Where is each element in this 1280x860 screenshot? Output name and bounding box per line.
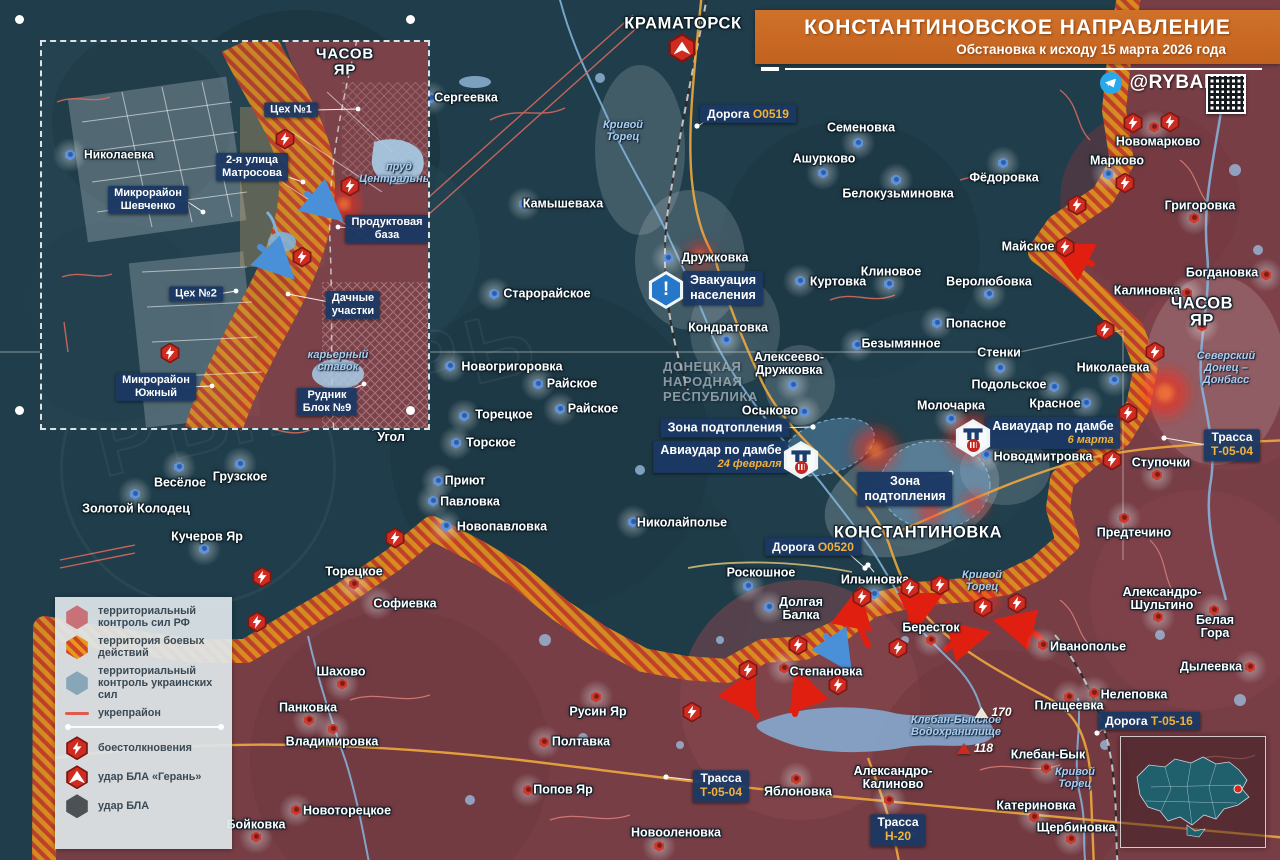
town-label: Клебан-Бык — [1011, 748, 1086, 761]
inset-label-box: Цех №1 — [264, 102, 318, 117]
town-label: Попов Яр — [533, 783, 593, 796]
clash-icon-inner — [901, 579, 918, 596]
event-box: Зонаподтопления — [857, 472, 952, 506]
town-label: Бересток — [902, 621, 959, 634]
town-label: Грузское — [213, 470, 267, 483]
inset-corner-dot — [406, 15, 415, 24]
legend-item-geran: удар БЛА «Герань» — [65, 765, 224, 789]
town-label: Торецкое — [325, 565, 382, 578]
inset-label-box: Продуктоваябаза — [345, 215, 428, 243]
war-map-screenshot: РЫБАРЬ СергеевкаКамышевахаСтарорайскоеНо… — [0, 0, 1280, 860]
road-sign-word: Дорога — [1105, 714, 1151, 728]
town-label: Русин Яр — [569, 705, 626, 718]
road-sign-word: Дорога — [772, 540, 818, 554]
event-date: 6 марта — [992, 434, 1113, 447]
town-label: Николаевка — [84, 149, 154, 162]
town-label: Приют — [445, 474, 486, 487]
clash-icon — [1067, 195, 1088, 216]
lightning-glyph — [858, 591, 867, 604]
town-label: Ашурково — [793, 152, 856, 165]
clash-icon — [275, 129, 296, 150]
town-label: Осыково — [742, 404, 798, 417]
geran-glyph — [670, 36, 695, 61]
combat-zone-icon — [65, 635, 89, 659]
inset-box-line: Блок №9 — [303, 402, 351, 415]
road-sign-word: Дорога — [707, 107, 753, 121]
legend-separator — [67, 726, 222, 728]
town-label: Клиновое — [861, 265, 922, 278]
elevation-value: 118 — [974, 741, 993, 755]
elevation-marker: 118 — [957, 741, 993, 755]
town-label: Николаевка — [1077, 361, 1150, 374]
lightning-glyph — [166, 347, 175, 360]
town-label: Александро- Калиново — [854, 765, 933, 791]
event-date: 24 февраля — [660, 458, 781, 471]
town-label: Долгая Балка — [779, 596, 823, 622]
clash-icon — [160, 343, 181, 364]
town-label: Безымянное — [861, 337, 940, 350]
clash-icon — [1145, 342, 1166, 363]
lightning-glyph — [1101, 324, 1110, 337]
town-label: Предтечино — [1097, 526, 1171, 539]
inset-box-line: база — [351, 229, 422, 242]
town-label: Новоторецкое — [303, 804, 391, 817]
town-label: Старорайское — [503, 287, 590, 300]
clash-icon-inner — [253, 568, 270, 585]
exclamation-glyph: ! — [650, 274, 681, 305]
town-label: Новооленовка — [631, 826, 721, 839]
lightning-glyph — [1013, 597, 1022, 610]
town-label: Ильиновка — [841, 573, 909, 586]
road-sign: ТрассаТ-05-04 — [693, 770, 749, 802]
lightning-glyph — [1129, 117, 1138, 130]
inset-corner-dot — [15, 15, 24, 24]
inset-box-line: Микрорайон — [122, 374, 190, 387]
road-sign-code: О0519 — [753, 107, 789, 121]
clash-icon-inner — [1161, 113, 1178, 130]
event-box-line: Авиаудар по дамбе — [660, 443, 781, 458]
lightning-glyph — [834, 679, 843, 692]
town-label: Марково — [1090, 154, 1144, 167]
town-label: Подольское — [972, 378, 1047, 391]
region-label: ДОНЕЦКАЯ НАРОДНАЯ РЕСПУБЛИКА — [663, 360, 758, 405]
town-label: Веролюбовка — [946, 275, 1032, 288]
clash-icon-inner — [1096, 321, 1113, 338]
telegram-icon — [1100, 72, 1122, 94]
water-label: Северский Донец – Донбасс — [1197, 350, 1255, 386]
inset-label-box: МикрорайонШевченко — [108, 186, 188, 214]
legend-item-ukraine-control: территориальный контроль украинских сил — [65, 665, 224, 702]
lightning-glyph — [1166, 116, 1175, 129]
clash-icon-inner — [1124, 114, 1141, 131]
elevation-triangle — [974, 707, 988, 718]
event-box-line: Зона подтопления — [668, 421, 783, 436]
town-label: Торецкое — [475, 408, 532, 421]
town-label: Новопавловка — [457, 520, 547, 533]
clash-icon-inner — [1056, 238, 1073, 255]
water-label: Кривой Торец — [1055, 766, 1095, 790]
town-label: Камышеваха — [523, 197, 603, 210]
clash-icon — [292, 247, 313, 268]
road-sign-word: Трасса — [1211, 431, 1253, 445]
lightning-glyph — [281, 133, 290, 146]
event-box: Эвакуациянаселения — [683, 271, 763, 305]
town-label: Алексеево- Дружковка — [754, 351, 824, 377]
clash-icon-inner — [1068, 196, 1085, 213]
clash-icon-inner — [248, 613, 265, 630]
clash-icon-inner — [1103, 451, 1120, 468]
clash-icon — [682, 702, 703, 723]
evacuation-icon: ! — [647, 271, 685, 309]
town-label: Николайполье — [637, 516, 727, 529]
town-label: Сергеевка — [434, 91, 498, 104]
clash-icon-inner — [276, 130, 293, 147]
town-label: Молочарка — [917, 399, 985, 412]
event-box: Зона подтопления — [661, 419, 790, 438]
town-label: Белокузьминовка — [842, 187, 953, 200]
fortified-line-icon — [65, 712, 89, 715]
event-box-line: подтопления — [864, 489, 945, 504]
map-subtitle: Обстановка к исходу 15 марта 2026 года — [769, 42, 1266, 57]
town-label: Яблоновка — [764, 785, 832, 798]
inset-label-box: 2-я улицаМатросова — [216, 153, 288, 181]
event-box: Авиаудар по дамбе6 марта — [985, 417, 1120, 449]
lightning-glyph — [1124, 407, 1133, 420]
inset-box-line: участки — [332, 305, 374, 318]
clash-icon-inner — [853, 588, 870, 605]
town-label: Иванополье — [1050, 640, 1126, 653]
clash-icon — [1007, 593, 1028, 614]
chasiv-yar-inset: ЧАСОВ ЯРНиколаевкаЦех №12-я улицаМатросо… — [20, 20, 410, 410]
event-box-line: Зона — [864, 474, 945, 489]
inset-box-line: Южный — [122, 387, 190, 400]
lightning-glyph — [258, 571, 267, 584]
road-sign: Дорога О0520 — [765, 538, 861, 556]
qr-code — [1206, 74, 1246, 114]
legend-item-clash: боестолкновения — [65, 736, 224, 760]
lightning-glyph — [253, 616, 262, 629]
town-label: Катериновка — [996, 799, 1075, 812]
ukraine-minimap — [1120, 736, 1266, 848]
credit-handle: @RYBAR — [1130, 72, 1218, 94]
town-label: Павловка — [440, 495, 500, 508]
clash-icon — [247, 612, 268, 633]
legend-item-russia-control: территориальный контроль сил РФ — [65, 605, 224, 630]
clash-icon-inner — [739, 661, 756, 678]
inset-label-box: Дачныеучастки — [326, 291, 380, 319]
inset-box-line: Цех №2 — [175, 287, 217, 300]
clash-icon — [1102, 450, 1123, 471]
lightning-glyph — [346, 180, 355, 193]
clash-icon-inner — [829, 676, 846, 693]
town-label: Дылеевка — [1180, 660, 1242, 673]
inset-box-line: Дачные — [332, 292, 374, 305]
town-label: Дружковка — [682, 251, 749, 264]
lightning-glyph — [1108, 454, 1117, 467]
clash-icon — [385, 528, 406, 549]
road-sign-code: Т-05-16 — [1151, 714, 1193, 728]
clash-icon-inner — [1119, 404, 1136, 421]
inset-water-label: карьерный ставок — [308, 349, 369, 373]
road-sign: Дорога Т-05-16 — [1098, 712, 1200, 730]
road-sign-code: О0520 — [818, 540, 854, 554]
town-label: Бойковка — [227, 818, 286, 831]
credit: @RYBAR — [1100, 72, 1218, 94]
dam-glyph — [957, 422, 988, 453]
town-label: Семеновка — [827, 121, 895, 134]
clash-icon-inner — [386, 529, 403, 546]
town-label: Весёлое — [154, 476, 206, 489]
clash-icon-inner — [683, 703, 700, 720]
town-label: Куртовка — [810, 275, 866, 288]
inset-label-box: РудникБлок №9 — [297, 388, 357, 416]
lightning-glyph — [906, 582, 915, 595]
town-label: Новодмитровка — [994, 450, 1093, 463]
clash-icon-inner — [974, 598, 991, 615]
event-box: Авиаудар по дамбе24 февраля — [653, 441, 788, 473]
lightning-glyph — [979, 601, 988, 614]
clash-icon — [1118, 403, 1139, 424]
lightning-glyph — [1121, 177, 1130, 190]
legend-item-fortified: укрепрайон — [65, 707, 224, 719]
town-label: Софиевка — [373, 597, 436, 610]
town-label: Стенки — [977, 346, 1021, 359]
event-box-line: населения — [690, 288, 756, 303]
clash-icon-inner — [889, 639, 906, 656]
clash-icon-inner — [1116, 174, 1133, 191]
town-label: Райское — [568, 402, 618, 415]
clash-icon — [340, 176, 361, 197]
clash-icon-inner — [789, 636, 806, 653]
town-label: Нелеповка — [1101, 688, 1168, 701]
elevation-marker: 170 — [974, 705, 1011, 719]
inset-corner-dot — [15, 406, 24, 415]
town-label: Шахово — [317, 665, 366, 678]
clash-icon — [65, 736, 89, 760]
town-label: КРАМАТОРСК — [624, 15, 741, 32]
clash-icon-inner — [931, 576, 948, 593]
town-label: Григоровка — [1165, 199, 1236, 212]
dam-glyph — [785, 444, 816, 475]
clash-icon — [1095, 320, 1116, 341]
lightning-glyph — [1151, 346, 1160, 359]
road-sign-word: Трасса — [877, 816, 918, 830]
town-label: Роскошное — [727, 566, 796, 579]
clash-icon-inner — [161, 344, 178, 361]
clash-icon — [738, 660, 759, 681]
road-sign-code: Т-05-04 — [1211, 445, 1253, 459]
geran-strike-icon — [65, 765, 89, 789]
clash-icon-inner — [1146, 343, 1163, 360]
inset-box-line: Продуктовая — [351, 216, 422, 229]
town-label: Новомарково — [1116, 135, 1200, 148]
inset-box-line: Рудник — [303, 389, 351, 402]
clash-icon — [888, 638, 909, 659]
road-sign-code: Н-20 — [877, 830, 918, 844]
clash-icon — [1055, 237, 1076, 258]
lightning-glyph — [688, 706, 697, 719]
town-label: Кучеров Яр — [171, 530, 243, 543]
inset-map: ЧАСОВ ЯРНиколаевкаЦех №12-я улицаМатросо… — [40, 40, 430, 430]
lightning-glyph — [298, 251, 307, 264]
water-label: Кривой Торец — [603, 119, 643, 143]
inset-box-line: 2-я улица — [222, 154, 282, 167]
town-label: Майское — [1002, 240, 1055, 253]
inset-box-line: Шевченко — [114, 200, 182, 213]
clash-icon — [973, 597, 994, 618]
clash-icon — [252, 567, 273, 588]
inset-corner-dot — [406, 406, 415, 415]
clash-icon — [930, 575, 951, 596]
clash-icon-inner — [293, 248, 310, 265]
town-label: Красное — [1029, 397, 1080, 410]
road-sign-code: Т-05-04 — [700, 786, 742, 800]
event-box-line: Авиаудар по дамбе — [992, 419, 1113, 434]
ukraine-control-icon — [65, 671, 89, 695]
geran-strike-icon — [667, 33, 697, 63]
town-label: Кондратовка — [688, 321, 768, 334]
town-label: Фёдоровка — [969, 171, 1038, 184]
lightning-glyph — [391, 532, 400, 545]
inset-label-box: Цех №2 — [169, 286, 223, 301]
inset-label-box: МикрорайонЮжный — [116, 373, 196, 401]
lightning-glyph — [794, 639, 803, 652]
road-sign-word: Трасса — [700, 772, 742, 786]
lightning-glyph — [1073, 199, 1082, 212]
legend-item-uav: удар БЛА — [65, 794, 224, 818]
town-label: Белая Гора — [1183, 614, 1248, 640]
road-sign: Дорога О0519 — [700, 105, 796, 123]
town-label: Полтавка — [552, 735, 610, 748]
legend-panel: территориальный контроль сил РФ территор… — [55, 597, 232, 849]
map-title: КОНСТАНТИНОВСКОЕ НАПРАВЛЕНИЕ — [769, 16, 1266, 40]
inset-water-label: пруд Центральный — [359, 161, 430, 185]
town-label: ЧАСОВ ЯР — [1163, 296, 1241, 331]
inset-labels-layer: ЧАСОВ ЯРНиколаевкаЦех №12-я улицаМатросо… — [42, 42, 428, 428]
lightning-glyph — [936, 579, 945, 592]
water-label: Кривой Торец — [962, 569, 1002, 593]
town-label: Райское — [547, 377, 597, 390]
russia-control-icon — [65, 605, 89, 629]
clash-icon-inner — [341, 177, 358, 194]
road-sign: ТрассаТ-05-04 — [1204, 429, 1260, 461]
town-label: Владимировка — [286, 735, 379, 748]
town-label: Щербиновка — [1037, 821, 1116, 834]
road-sign: ТрассаН-20 — [870, 814, 925, 846]
inset-title: ЧАСОВ ЯР — [304, 46, 387, 78]
town-label: Ступочки — [1132, 456, 1190, 469]
title-banner: КОНСТАНТИНОВСКОЕ НАПРАВЛЕНИЕ Обстановка … — [755, 10, 1280, 72]
clash-icon-inner — [1008, 594, 1025, 611]
lightning-glyph — [744, 664, 753, 677]
event-box-line: Эвакуация — [690, 273, 756, 288]
lightning-glyph — [894, 642, 903, 655]
town-label: Попасное — [946, 317, 1006, 330]
town-label: Торское — [466, 436, 516, 449]
uav-strike-icon — [65, 794, 89, 818]
elevation-value: 170 — [991, 705, 1011, 719]
inset-box-line: Матросова — [222, 167, 282, 180]
town-label: Золотой Колодец — [82, 502, 190, 515]
elevation-triangle — [957, 743, 971, 754]
lightning-glyph — [1061, 241, 1070, 254]
town-label: Александро- Шультино — [1123, 586, 1202, 612]
inset-box-line: Микрорайон — [114, 187, 182, 200]
town-label: Степановка — [790, 665, 863, 678]
inset-box-line: Цех №1 — [270, 103, 312, 116]
legend-item-combat-zone: территория боевых действий — [65, 635, 224, 660]
